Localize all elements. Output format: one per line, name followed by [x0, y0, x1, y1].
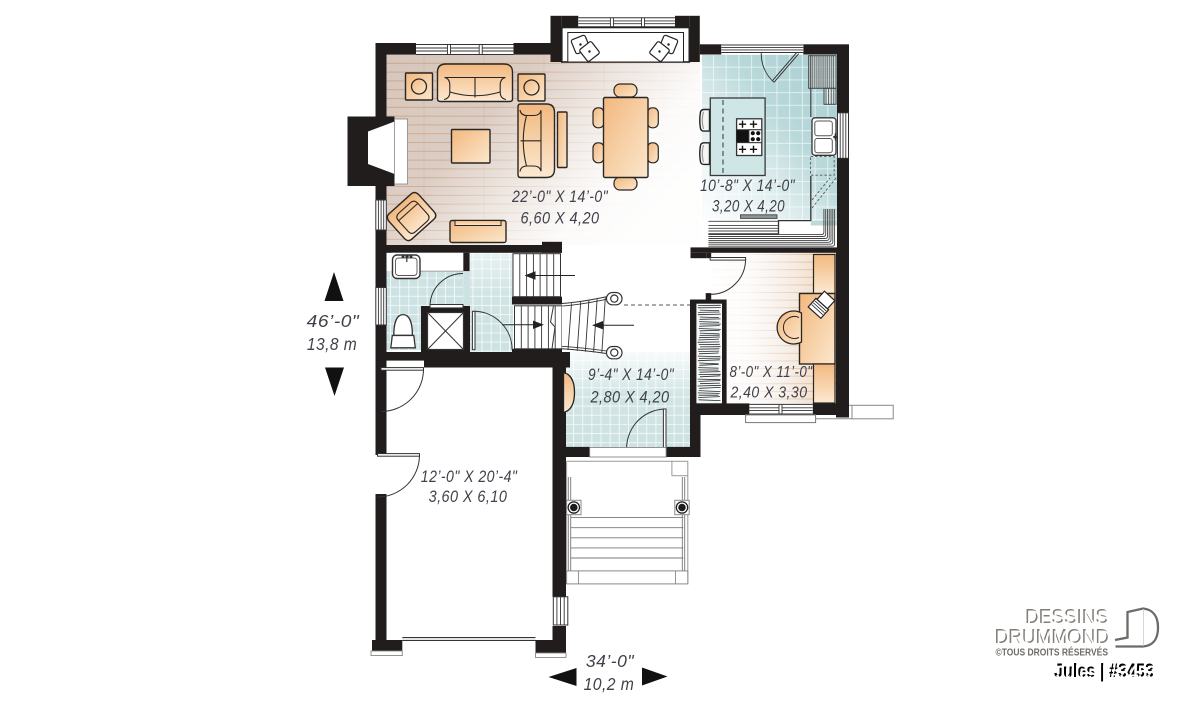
svg-text:2,40 X 3,30: 2,40 X 3,30	[730, 385, 808, 402]
svg-text:22’-0" X 14’-0": 22’-0" X 14’-0"	[511, 188, 608, 206]
svg-text:2,80 X 4,20: 2,80 X 4,20	[590, 389, 670, 407]
svg-text:34’-0": 34’-0"	[586, 651, 634, 671]
svg-text:3,20 X 4,20: 3,20 X 4,20	[712, 198, 785, 216]
svg-text:©TOUS DROITS RÉSERVÉS: ©TOUS DROITS RÉSERVÉS	[996, 646, 1109, 659]
svg-text:10’-8" X 14’-0": 10’-8" X 14’-0"	[700, 177, 796, 195]
svg-text:13,8 m: 13,8 m	[307, 334, 357, 354]
svg-text:DRUMMOND: DRUMMOND	[996, 627, 1111, 650]
svg-text:12’-0" X 20’-4": 12’-0" X 20’-4"	[421, 468, 518, 486]
svg-text:3,60 X 6,10: 3,60 X 6,10	[429, 488, 508, 506]
svg-text:8’-0" X 11’-0": 8’-0" X 11’-0"	[730, 364, 814, 381]
svg-text:46’-0": 46’-0"	[307, 311, 360, 331]
svg-text:9’-4" X 14’-0": 9’-4" X 14’-0"	[588, 366, 675, 384]
svg-text:Jules | #3453: Jules | #3453	[1056, 662, 1156, 684]
svg-text:10,2 m: 10,2 m	[584, 674, 635, 694]
svg-text:6,60 X 4,20: 6,60 X 4,20	[521, 210, 600, 228]
